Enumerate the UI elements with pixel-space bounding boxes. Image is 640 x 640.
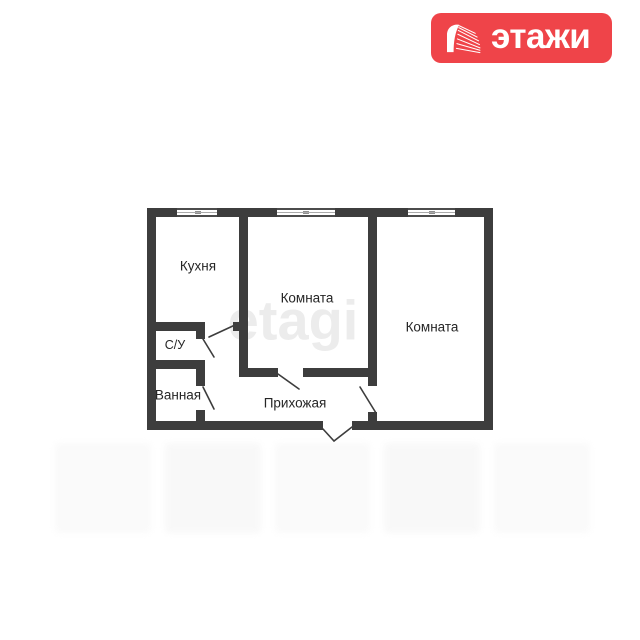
room-label-room-1: Комната [281,291,334,306]
entrance-door-leaf [323,427,352,441]
bathroom-door-leaf [203,387,214,409]
room-label-hallway: Прихожая [264,396,327,411]
floor-plan: etagi [147,208,493,430]
room2-door-leaf [360,387,376,413]
room1-door-leaf [278,374,299,389]
room-label-room-2: Комната [406,320,459,335]
wc-door-leaf [203,339,214,357]
room-label-bathroom: Ванная [155,388,201,403]
kitchen-door-leaf [209,325,235,337]
logo-wordmark: этажи [491,19,590,54]
etagi-building-icon [444,22,482,54]
bottom-watermark [55,443,590,533]
room-label-kitchen: Кухня [180,259,216,274]
listing-photo: этажи etagi [0,0,640,640]
room-label-wc: С/У [165,338,185,352]
etagi-logo: этажи [431,13,612,63]
